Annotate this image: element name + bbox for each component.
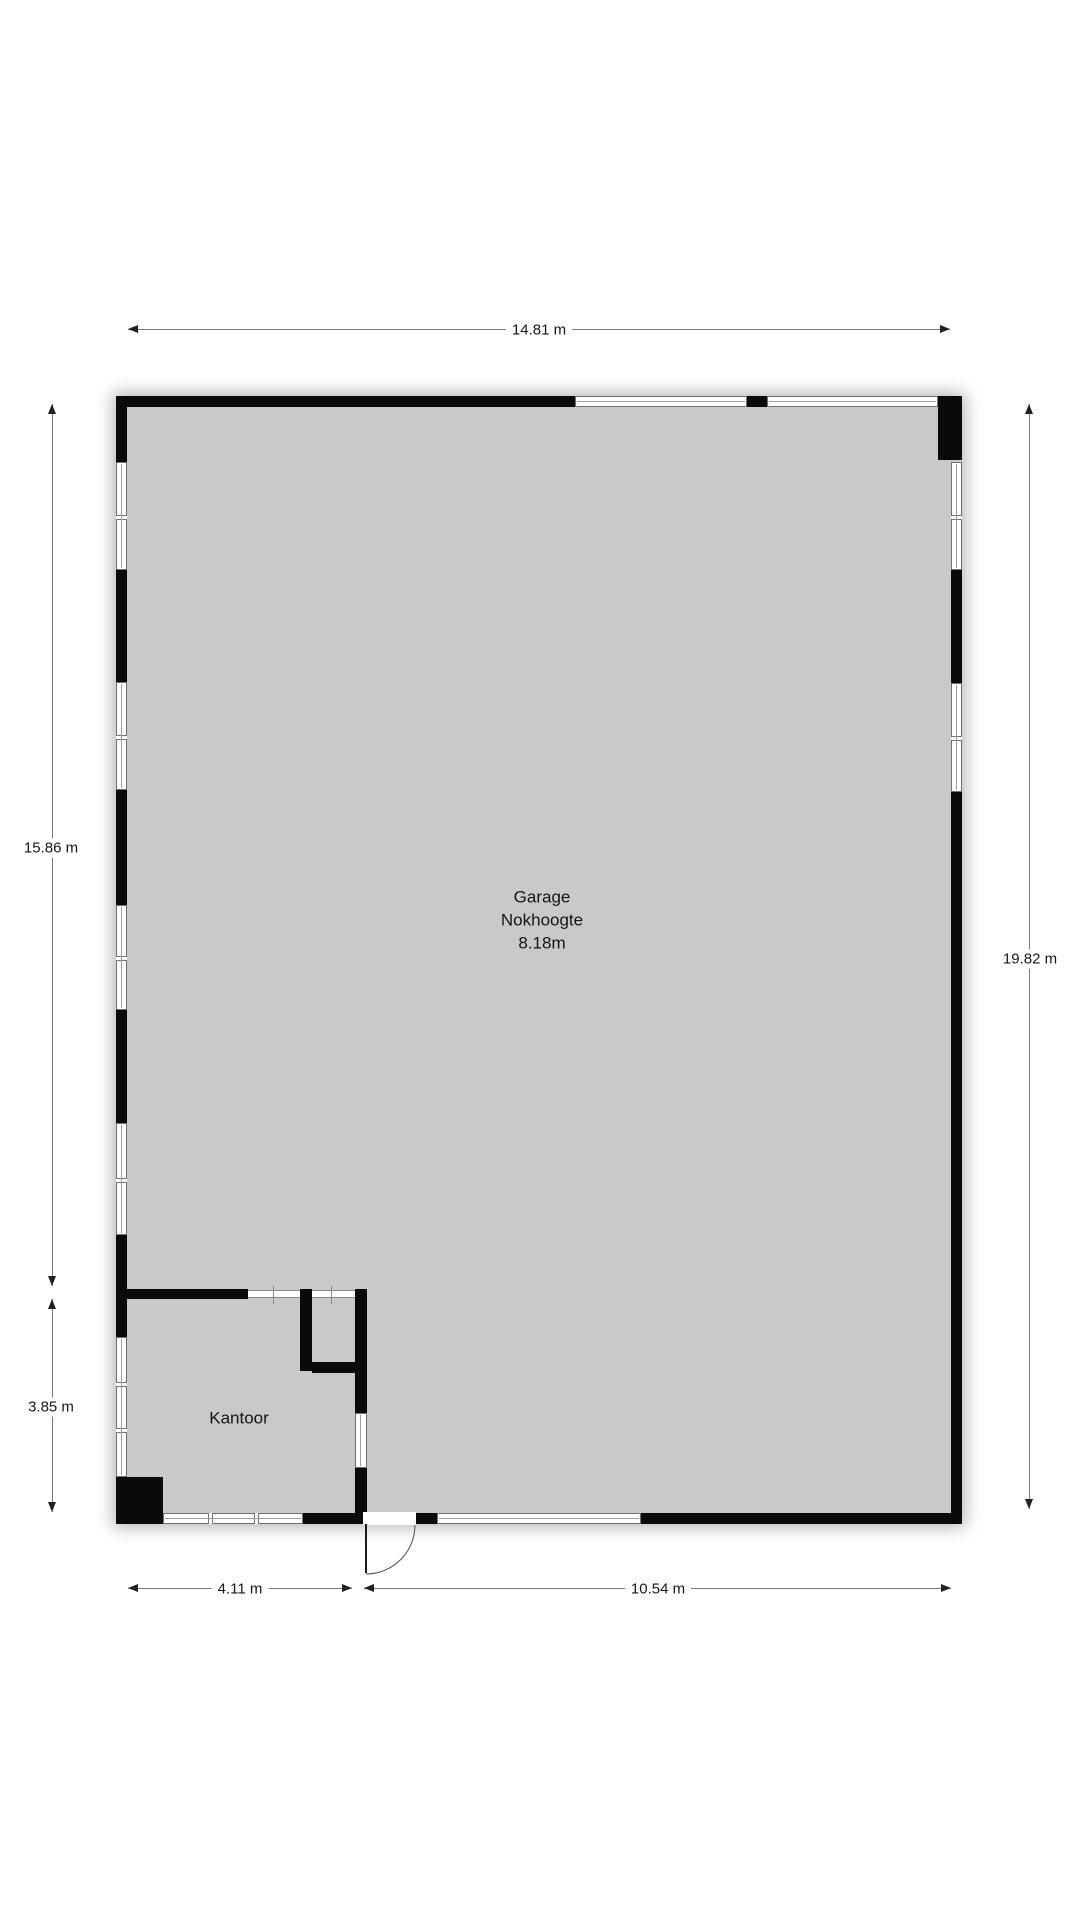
window-mullion [951, 515, 962, 520]
window-kantoor-right [355, 1413, 367, 1468]
wall-left-segment-4 [116, 1010, 127, 1123]
door-swing-arc [364, 1523, 417, 1576]
window-mullion [116, 956, 127, 961]
window-mullion [116, 735, 127, 740]
window-mullion [208, 1513, 213, 1524]
arrow-up-icon [48, 1299, 56, 1309]
building-floor [116, 396, 962, 1524]
wall-top-post [747, 396, 767, 407]
wall-corner-top-right [938, 396, 962, 460]
wall-left-segment-5 [116, 1235, 127, 1337]
wall-top-left-segment [116, 396, 575, 407]
garage-room-label: Garage Nokhoogte 8.18m [501, 886, 583, 955]
arrow-up-icon [1025, 404, 1033, 414]
arrow-up-icon [48, 404, 56, 414]
window-bottom-2 [437, 1513, 641, 1524]
floor-plan-canvas: Garage Nokhoogte 8.18m Kantoor 14.81 m 1… [0, 0, 1080, 1920]
opening-tick [331, 1286, 332, 1304]
dimension-label-right: 19.82 m [997, 950, 1063, 969]
wall-right-segment-2 [951, 792, 962, 1524]
window-mullion [116, 1428, 127, 1433]
dimension-label-left-lower: 3.85 m [22, 1398, 80, 1417]
wall-bottom-segment-3 [641, 1513, 962, 1524]
window-left-5 [116, 1337, 127, 1477]
interior-opening-1 [248, 1290, 300, 1298]
wall-left-segment-1 [116, 396, 127, 462]
arrow-right-icon [342, 1584, 352, 1592]
wall-bottom-segment-1 [303, 1513, 363, 1524]
wall-bottom-segment-2 [416, 1513, 437, 1524]
window-left-2 [116, 682, 127, 790]
garage-ridge-height-title: Nokhoogte [501, 909, 583, 932]
dimension-label-left-upper: 15.86 m [18, 839, 84, 858]
arrow-left-icon [128, 325, 138, 333]
window-mullion [116, 515, 127, 520]
garage-ridge-height-value: 8.18m [501, 932, 583, 955]
window-right-1 [951, 462, 962, 570]
arrow-left-icon [128, 1584, 138, 1592]
window-bottom-1 [163, 1513, 303, 1524]
window-top-2 [767, 396, 938, 407]
wall-kantoor-right-upper [355, 1289, 367, 1413]
kantoor-name: Kantoor [209, 1407, 269, 1430]
arrow-left-icon [364, 1584, 374, 1592]
window-mullion [254, 1513, 259, 1524]
wall-right-segment-1 [951, 570, 962, 683]
wall-left-segment-2 [116, 570, 127, 682]
window-mullion [116, 1178, 127, 1183]
interior-opening-2 [312, 1290, 355, 1298]
kantoor-room-label: Kantoor [209, 1407, 269, 1430]
window-mullion [951, 736, 962, 741]
arrow-down-icon [1025, 1499, 1033, 1509]
garage-name: Garage [501, 886, 583, 909]
window-left-1 [116, 462, 127, 570]
window-left-4 [116, 1123, 127, 1235]
window-right-2 [951, 683, 962, 792]
wall-nook-left [300, 1289, 312, 1371]
arrow-right-icon [940, 325, 950, 333]
dimension-label-top: 14.81 m [506, 321, 572, 340]
opening-tick [273, 1286, 274, 1304]
dimension-label-bottom-right: 10.54 m [625, 1580, 691, 1599]
arrow-down-icon [48, 1502, 56, 1512]
window-left-3 [116, 905, 127, 1010]
arrow-down-icon [48, 1276, 56, 1286]
window-top-1 [575, 396, 747, 407]
wall-left-segment-3 [116, 790, 127, 905]
wall-corner-bottom-left [116, 1477, 163, 1524]
dimension-label-bottom-left: 4.11 m [212, 1580, 269, 1599]
arrow-right-icon [941, 1584, 951, 1592]
wall-kantoor-top [116, 1289, 248, 1299]
window-mullion [116, 1382, 127, 1387]
